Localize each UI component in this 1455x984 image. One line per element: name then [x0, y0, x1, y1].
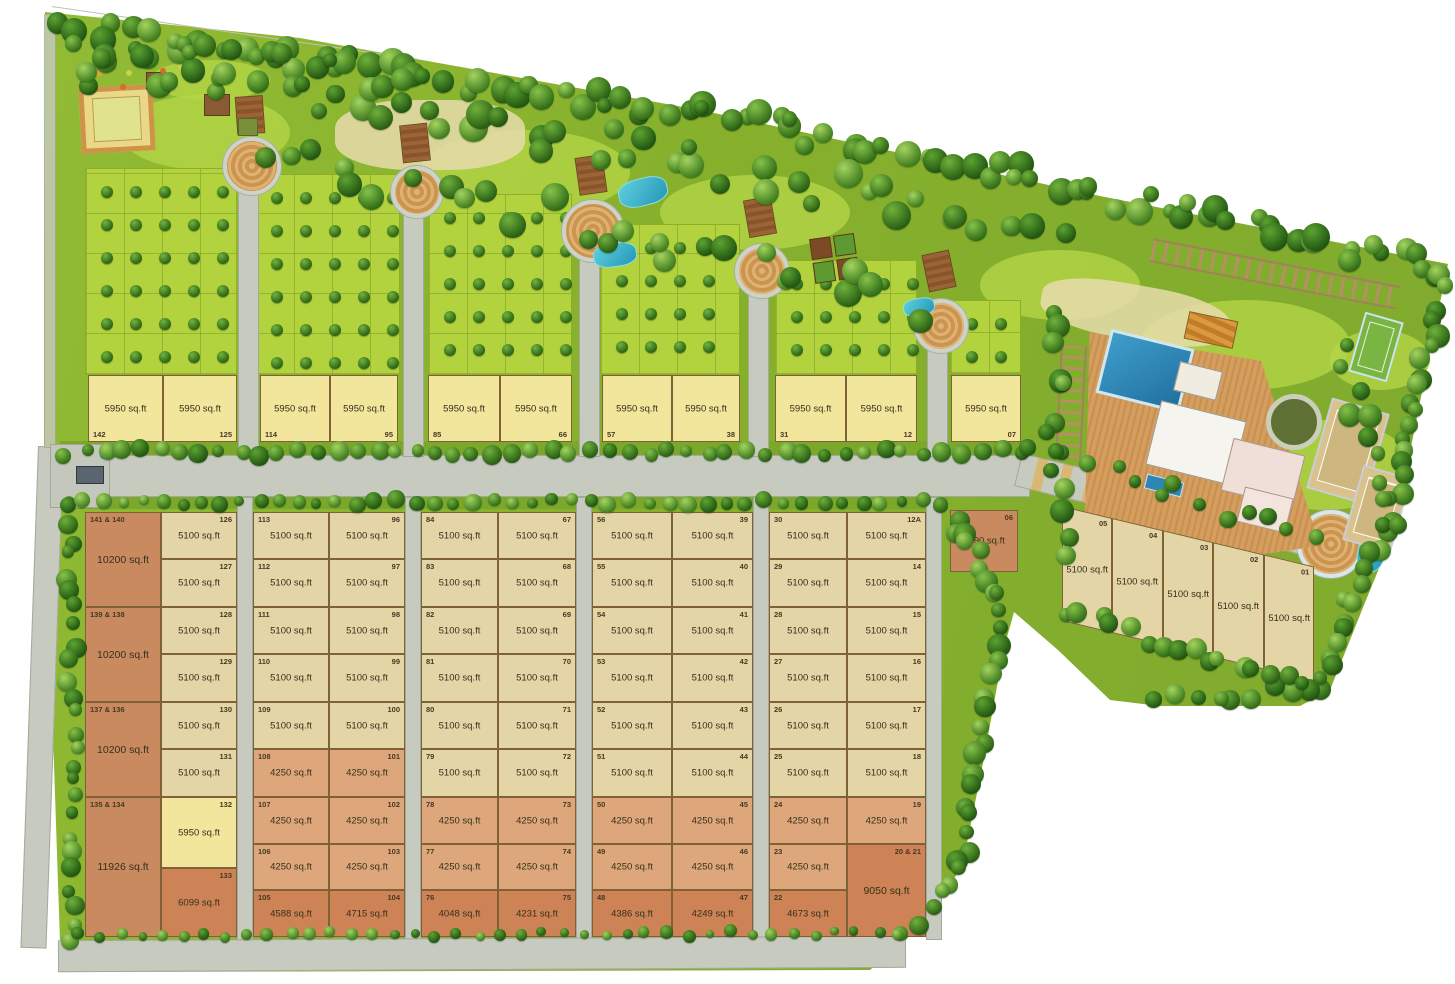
- plot-68: 685100 sq.ft: [498, 559, 576, 607]
- plot-number: 16: [913, 658, 921, 666]
- orchard-tree: [674, 341, 686, 353]
- orchard-tree: [271, 192, 283, 204]
- plot-size-label: 4588 sq.ft: [254, 908, 328, 919]
- plot-number: 14: [913, 563, 921, 571]
- orchard-tree: [101, 219, 113, 231]
- orchard-tree: [188, 219, 200, 231]
- tree: [700, 496, 717, 513]
- plot-size-label: 5100 sq.ft: [330, 578, 404, 589]
- plot-139-138: 139 & 13810200 sq.ft: [85, 607, 161, 702]
- orchard-tree: [217, 186, 229, 198]
- orchard-tree: [703, 275, 715, 287]
- tree: [877, 440, 895, 458]
- tree: [488, 493, 501, 506]
- tree: [908, 309, 932, 333]
- plot-97: 975100 sq.ft: [329, 559, 405, 607]
- internal-road: [926, 497, 942, 940]
- orchard-tree: [101, 285, 113, 297]
- plot-42: 425100 sq.ft: [672, 654, 753, 702]
- plot-50: 504250 sq.ft: [592, 797, 672, 844]
- plot-number: 142: [93, 431, 106, 439]
- orchard-tree: [907, 344, 919, 356]
- plot-17: 175100 sq.ft: [847, 702, 926, 749]
- orchard-tree: [188, 351, 200, 363]
- plot-number: 75: [563, 894, 571, 902]
- tree: [350, 443, 366, 459]
- plot-99: 995100 sq.ft: [329, 654, 405, 702]
- tree: [404, 169, 421, 186]
- orchard-tree: [444, 212, 456, 224]
- orchard-tree: [473, 344, 485, 356]
- plot-23: 234250 sq.ft: [769, 844, 847, 890]
- orchard-tree: [674, 308, 686, 320]
- plot-number: 128: [219, 611, 232, 619]
- orchard-tree: [271, 357, 283, 369]
- plot-number: 12: [904, 431, 912, 439]
- orchard-tree: [300, 192, 312, 204]
- tree: [92, 48, 111, 67]
- tree: [71, 927, 84, 940]
- orchard-tree: [616, 275, 628, 287]
- tree: [558, 82, 575, 99]
- orchard-tree: [645, 308, 657, 320]
- plot-number: 114: [265, 431, 277, 439]
- plot-size-label: 5100 sq.ft: [1164, 588, 1212, 599]
- plot-80: 805100 sq.ft: [421, 702, 498, 749]
- plot-size-label: 4250 sq.ft: [593, 815, 671, 826]
- tree: [1389, 516, 1407, 534]
- plot-18: 185100 sq.ft: [847, 749, 926, 797]
- tree: [171, 444, 187, 460]
- orchard-tree: [130, 219, 142, 231]
- gate-cabin: [76, 466, 104, 484]
- orchard-tree: [101, 252, 113, 264]
- plot-number: 112: [258, 563, 270, 571]
- tree: [160, 72, 179, 91]
- plot-size-label: 4250 sq.ft: [499, 862, 575, 873]
- tree: [1193, 498, 1206, 511]
- plot-49: 494250 sq.ft: [592, 844, 672, 890]
- plot-number: 137 & 136: [90, 706, 125, 714]
- orchard-tree: [329, 291, 341, 303]
- plot-number: 45: [740, 801, 748, 809]
- avenue-road: [403, 188, 424, 457]
- plot-number: 05: [1099, 520, 1107, 528]
- plot-107: 1074250 sq.ft: [253, 797, 329, 844]
- plot-size-label: 10200 sq.ft: [86, 649, 160, 661]
- plot-size-label: 4250 sq.ft: [770, 862, 846, 873]
- plot-size-label: 5100 sq.ft: [330, 625, 404, 636]
- tree: [989, 585, 1004, 600]
- plot-size-label: 5100 sq.ft: [848, 530, 925, 541]
- tree: [1395, 465, 1414, 484]
- tree: [974, 696, 995, 717]
- tree: [323, 53, 337, 67]
- orchard-tree: [502, 245, 514, 257]
- plot-114: 1145950 sq.ft: [260, 375, 330, 442]
- plot-84: 845100 sq.ft: [421, 512, 498, 559]
- plot-03: 035100 sq.ft: [1163, 530, 1213, 657]
- plot-size-label: 5950 sq.ft: [162, 827, 236, 838]
- plot-number: 111: [258, 611, 270, 619]
- tree: [181, 58, 205, 82]
- plot-number: 108: [258, 753, 271, 761]
- plot-size-label: 5950 sq.ft: [261, 403, 329, 414]
- plot-size-label: 5100 sq.ft: [673, 625, 752, 636]
- plot-number: 38: [727, 431, 735, 439]
- plot-size-label: 5100 sq.ft: [673, 578, 752, 589]
- tree: [818, 496, 833, 511]
- tree: [875, 927, 886, 938]
- orchard-tree: [159, 186, 171, 198]
- plot-size-label: 5100 sq.ft: [499, 578, 575, 589]
- tree: [795, 136, 813, 154]
- tree: [753, 179, 779, 205]
- plot-number: 42: [740, 658, 748, 666]
- plot-29: 295100 sq.ft: [769, 559, 847, 607]
- tree: [1352, 382, 1370, 400]
- plot-size-label: 4673 sq.ft: [770, 908, 846, 919]
- plot-number: 81: [426, 658, 434, 666]
- orchard-tree: [300, 291, 312, 303]
- plot-size-label: 5100 sq.ft: [770, 625, 846, 636]
- tree: [926, 899, 942, 915]
- orchard-tree: [387, 225, 399, 237]
- tree: [972, 719, 988, 735]
- plot-size-label: 5100 sq.ft: [770, 530, 846, 541]
- orchard-tree: [300, 357, 312, 369]
- tree: [960, 804, 977, 821]
- plot-number: 29: [774, 563, 782, 571]
- tree: [1048, 443, 1064, 459]
- plot-size-label: 5950 sq.ft: [776, 403, 845, 414]
- tree: [758, 448, 772, 462]
- plot-54: 545100 sq.ft: [592, 607, 672, 654]
- avenue-road: [238, 162, 259, 457]
- tree: [428, 446, 442, 460]
- plot-size-label: 4250 sq.ft: [848, 815, 925, 826]
- plot-56: 565100 sq.ft: [592, 512, 672, 559]
- tree: [482, 445, 502, 465]
- tree: [609, 86, 632, 109]
- tree: [234, 496, 244, 506]
- tree: [119, 497, 129, 507]
- tree: [834, 159, 863, 188]
- tree: [447, 498, 459, 510]
- plot-size-label: 9050 sq.ft: [848, 885, 925, 897]
- tree: [450, 928, 461, 939]
- tree: [1409, 347, 1430, 368]
- tree: [71, 741, 85, 755]
- plot-number: 43: [740, 706, 748, 714]
- plot-size-label: 5100 sq.ft: [770, 768, 846, 779]
- tree: [346, 928, 358, 940]
- plot-number: 67: [563, 516, 571, 524]
- plot-98: 985100 sq.ft: [329, 607, 405, 654]
- plot-number: 133: [219, 872, 232, 880]
- orchard-tree: [101, 351, 113, 363]
- plot-number: 105: [258, 894, 271, 902]
- tree: [980, 663, 1002, 685]
- plot-size-label: 5950 sq.ft: [847, 403, 916, 414]
- orchard-tree: [473, 311, 485, 323]
- tree: [585, 494, 598, 507]
- orchard-tree: [560, 344, 572, 356]
- plot-number: 110: [258, 658, 270, 666]
- tree: [131, 439, 149, 457]
- orchard-block: [85, 168, 237, 375]
- north-west-lane: [44, 14, 56, 448]
- plot-129: 1295100 sq.ft: [161, 654, 237, 702]
- plot-number: 70: [563, 658, 571, 666]
- tree: [249, 446, 268, 465]
- plot-77: 774250 sq.ft: [421, 844, 498, 890]
- plot-number: 99: [392, 658, 400, 666]
- plot-number: 22: [774, 894, 782, 902]
- plot-number: 103: [387, 848, 400, 856]
- orchard-tree: [820, 311, 832, 323]
- tree: [956, 532, 974, 550]
- plot-number: 126: [219, 516, 232, 524]
- plot-size-label: 4250 sq.ft: [673, 815, 752, 826]
- tree: [188, 444, 207, 463]
- tree: [428, 118, 449, 139]
- tree: [541, 183, 569, 211]
- plot-size-label: 5950 sq.ft: [673, 403, 739, 414]
- plot-69: 695100 sq.ft: [498, 607, 576, 654]
- tree: [1019, 439, 1036, 456]
- tree: [1302, 223, 1330, 251]
- plot-number: 84: [426, 516, 434, 524]
- plot-number: 77: [426, 848, 434, 856]
- tree: [1358, 427, 1378, 447]
- tree: [1042, 332, 1064, 354]
- plot-74: 744250 sq.ft: [498, 844, 576, 890]
- planter-bed: [809, 236, 833, 260]
- tree: [849, 926, 858, 935]
- plot-141-140: 141 & 14010200 sq.ft: [85, 512, 161, 607]
- tree: [303, 927, 316, 940]
- tree: [680, 445, 692, 457]
- plot-number: 17: [913, 706, 921, 714]
- plot-size-label: 5100 sq.ft: [1063, 564, 1111, 575]
- plot-size-label: 5100 sq.ft: [162, 673, 236, 684]
- tree: [963, 741, 987, 765]
- plot-number: 98: [392, 611, 400, 619]
- plot-57: 575950 sq.ft: [602, 375, 672, 442]
- internal-road: [405, 497, 421, 940]
- plot-size-label: 5950 sq.ft: [603, 403, 671, 414]
- plot-100: 1005100 sq.ft: [329, 702, 405, 749]
- tree: [683, 930, 696, 943]
- plot-132: 1325950 sq.ft: [161, 797, 237, 868]
- plot-46: 464250 sq.ft: [672, 844, 753, 890]
- plot-number: 125: [219, 431, 232, 439]
- tree: [1145, 691, 1161, 707]
- plot-45: 454250 sq.ft: [672, 797, 753, 844]
- plot-size-label: 4715 sq.ft: [330, 908, 404, 919]
- plot-size-label: 4250 sq.ft: [770, 815, 846, 826]
- plot-137-136: 137 & 13610200 sq.ft: [85, 702, 161, 797]
- plot-size-label: 5100 sq.ft: [593, 530, 671, 541]
- tree: [311, 498, 321, 508]
- tree: [139, 495, 149, 505]
- orchard-tree: [878, 311, 890, 323]
- plot-38: 385950 sq.ft: [672, 375, 740, 442]
- orchard-tree: [217, 351, 229, 363]
- plot-number: 06: [1005, 514, 1013, 522]
- plot-number: 107: [258, 801, 271, 809]
- flower-bed: [120, 84, 126, 90]
- plot-size-label: 5100 sq.ft: [254, 625, 328, 636]
- tree: [1353, 575, 1371, 593]
- tree: [959, 825, 973, 839]
- orchard-tree: [188, 285, 200, 297]
- tree: [337, 172, 362, 197]
- orchard-tree: [188, 318, 200, 330]
- tree: [645, 448, 659, 462]
- plot-number: 30: [774, 516, 782, 524]
- orchard-tree: [130, 318, 142, 330]
- tree: [527, 498, 537, 508]
- plot-size-label: 5950 sq.ft: [429, 403, 499, 414]
- plot-size-label: 5950 sq.ft: [331, 403, 397, 414]
- plot-112: 1125100 sq.ft: [253, 559, 329, 607]
- plot-size-label: 4250 sq.ft: [254, 768, 328, 779]
- tree: [212, 445, 224, 457]
- tree: [221, 39, 242, 60]
- plot-size-label: 5100 sq.ft: [499, 768, 575, 779]
- plot-25: 255100 sq.ft: [769, 749, 847, 797]
- plot-size-label: 5100 sq.ft: [499, 530, 575, 541]
- tree: [178, 499, 190, 511]
- plot-number: 47: [740, 894, 748, 902]
- plot-size-label: 5100 sq.ft: [848, 578, 925, 589]
- plot-number: 28: [774, 611, 782, 619]
- orchard-tree: [271, 258, 283, 270]
- orchard-tree: [358, 357, 370, 369]
- tree: [870, 174, 893, 197]
- tree: [516, 929, 528, 941]
- plot-size-label: 4250 sq.ft: [330, 815, 404, 826]
- plot-111: 1115100 sq.ft: [253, 607, 329, 654]
- tree: [349, 497, 365, 513]
- orchard-tree: [271, 225, 283, 237]
- tree: [598, 496, 615, 513]
- tree: [650, 233, 669, 252]
- plot-size-label: 5100 sq.ft: [254, 578, 328, 589]
- tree: [631, 97, 654, 120]
- plot-size-label: 5100 sq.ft: [254, 530, 328, 541]
- tree: [241, 929, 252, 940]
- plot-31: 315950 sq.ft: [775, 375, 846, 442]
- plot-number: 23: [774, 848, 782, 856]
- tree: [952, 444, 972, 464]
- orchard-tree: [791, 311, 803, 323]
- plot-size-label: 5100 sq.ft: [1265, 612, 1313, 623]
- plot-size-label: 4231 sq.ft: [499, 908, 575, 919]
- tree: [454, 188, 475, 209]
- tree: [703, 447, 717, 461]
- plot-number: 104: [387, 894, 400, 902]
- plot-number: 04: [1149, 532, 1157, 540]
- tree: [1165, 684, 1185, 704]
- plot-number: 95: [385, 431, 393, 439]
- tree: [830, 927, 838, 935]
- plot-number: 26: [774, 706, 782, 714]
- plot-size-label: 5100 sq.ft: [848, 720, 925, 731]
- circular-lawn: [1266, 394, 1322, 450]
- plot-78: 784250 sq.ft: [421, 797, 498, 844]
- orchard-tree: [531, 344, 543, 356]
- plot-12A: 12A5100 sq.ft: [847, 512, 926, 559]
- plot-number: 19: [913, 801, 921, 809]
- plot-128: 1285100 sq.ft: [161, 607, 237, 654]
- tree: [621, 492, 637, 508]
- tree: [721, 497, 734, 510]
- tree: [328, 495, 340, 507]
- plot-size-label: 5100 sq.ft: [499, 625, 575, 636]
- plot-number: 83: [426, 563, 434, 571]
- tree: [247, 70, 269, 92]
- plot-41: 415100 sq.ft: [672, 607, 753, 654]
- plot-79: 795100 sq.ft: [421, 749, 498, 797]
- tree: [157, 930, 167, 940]
- tree: [803, 195, 820, 212]
- tree: [746, 99, 772, 125]
- plot-number: 48: [597, 894, 605, 902]
- tree: [788, 171, 809, 192]
- plot-27: 275100 sq.ft: [769, 654, 847, 702]
- plot-size-label: 4250 sq.ft: [330, 862, 404, 873]
- hedge-square: [238, 118, 258, 136]
- tree: [139, 932, 147, 940]
- tree: [1322, 655, 1343, 676]
- plot-103: 1034250 sq.ft: [329, 844, 405, 890]
- tree: [1214, 691, 1229, 706]
- tree: [391, 68, 414, 91]
- tree: [1372, 475, 1387, 490]
- plot-number: 71: [563, 706, 571, 714]
- plot-72: 725100 sq.ft: [498, 749, 576, 797]
- tree: [475, 180, 497, 202]
- orchard-tree: [444, 245, 456, 257]
- plot-number: 127: [219, 563, 232, 571]
- tree: [432, 70, 454, 92]
- plot-70: 705100 sq.ft: [498, 654, 576, 702]
- plot-number: 18: [913, 753, 921, 761]
- tree: [366, 928, 378, 940]
- tree: [1259, 508, 1277, 526]
- plot-size-label: 5100 sq.ft: [593, 673, 671, 684]
- plot-size-label: 5100 sq.ft: [673, 673, 752, 684]
- plot-number: 101: [387, 753, 400, 761]
- plot-108: 1084250 sq.ft: [253, 749, 329, 797]
- tree: [1219, 511, 1236, 528]
- orchard-tree: [329, 192, 341, 204]
- plot-number: 79: [426, 753, 434, 761]
- orchard-tree: [159, 285, 171, 297]
- plot-size-label: 5100 sq.ft: [593, 768, 671, 779]
- tree: [414, 68, 430, 84]
- plot-size-label: 5100 sq.ft: [848, 673, 925, 684]
- orchard-tree: [645, 341, 657, 353]
- tree: [782, 111, 798, 127]
- tree: [1437, 277, 1453, 293]
- orchard-tree: [674, 242, 686, 254]
- tree: [1056, 546, 1075, 565]
- plot-number: 97: [392, 563, 400, 571]
